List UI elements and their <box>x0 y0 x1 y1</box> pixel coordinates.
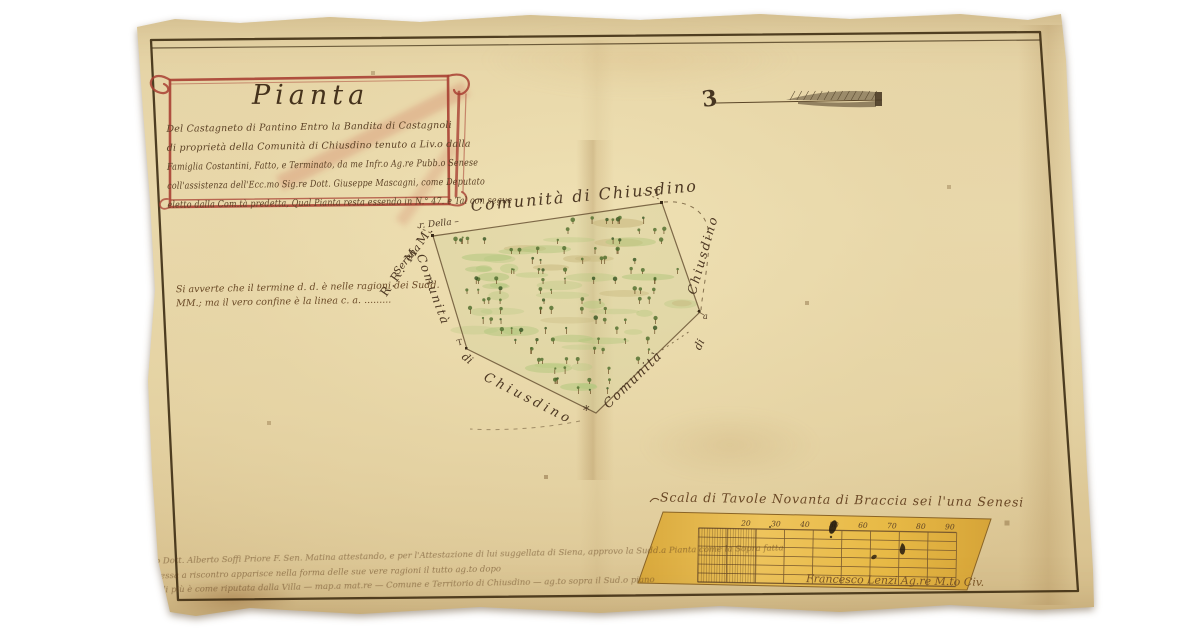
scale-number: 20 <box>741 519 751 528</box>
map-artwork <box>0 0 1200 628</box>
north-arrow <box>716 91 882 107</box>
scale-number: 40 <box>800 520 810 529</box>
map-title: Pianta <box>252 80 369 111</box>
surveyor-note: Si avverte che il termine d. d. è nelle … <box>176 279 440 311</box>
boundary-marker-star: * <box>583 404 590 419</box>
parchment-surface: Pianta Del Castagneto di Pantino Entro l… <box>0 0 1200 628</box>
boundary-marker-t: T <box>654 189 660 199</box>
scanned-map-page: Pianta Del Castagneto di Pantino Entro l… <box>0 0 1200 628</box>
scale-number: 80 <box>916 522 926 531</box>
parchment-sheet: Pianta Del Castagneto di Pantino Entro l… <box>0 0 1200 628</box>
scale-number: 30 <box>771 519 781 528</box>
boundary-marker-a: a <box>703 312 708 321</box>
stain-specks <box>0 0 2 2</box>
scale-number: 70 <box>887 521 897 530</box>
parcel <box>415 193 709 430</box>
scale-number: 50 <box>829 520 839 529</box>
scale-number: 90 <box>945 522 955 531</box>
scale-number: 60 <box>858 521 868 530</box>
